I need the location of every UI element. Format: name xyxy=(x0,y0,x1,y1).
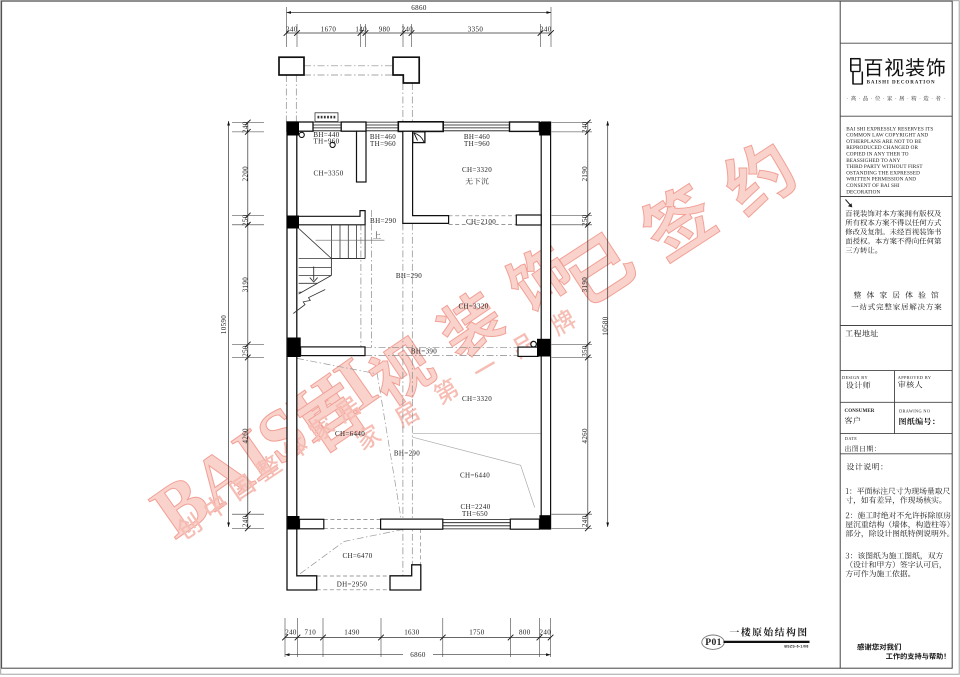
svg-text:CONSUMER: CONSUMER xyxy=(845,409,875,414)
svg-text:350: 350 xyxy=(581,345,589,357)
svg-text:800: 800 xyxy=(519,629,531,637)
svg-text:DECORATION: DECORATION xyxy=(846,189,880,195)
svg-text:DESIGN BY: DESIGN BY xyxy=(842,375,868,380)
svg-text:BSZS-6-1/08: BSZS-6-1/08 xyxy=(784,645,808,649)
svg-text:250: 250 xyxy=(241,214,249,226)
svg-text:250: 250 xyxy=(241,345,249,357)
svg-text:3190: 3190 xyxy=(581,277,589,293)
svg-text:BAI SHI EXPRESSLY RESERVES ITS: BAI SHI EXPRESSLY RESERVES ITS xyxy=(846,126,933,132)
svg-text:CH=6440: CH=6440 xyxy=(460,471,490,479)
svg-text:CH=2100: CH=2100 xyxy=(466,218,496,226)
svg-text:BAISHI DECORATION: BAISHI DECORATION xyxy=(867,80,936,85)
svg-text:240: 240 xyxy=(540,26,552,34)
svg-text:1670: 1670 xyxy=(321,26,337,34)
svg-text:240: 240 xyxy=(286,26,298,34)
svg-text:1490: 1490 xyxy=(344,629,360,637)
svg-text:BH=290: BH=290 xyxy=(394,449,420,457)
svg-text:OTHERPLANS ARE NOT TO BE: OTHERPLANS ARE NOT TO BE xyxy=(846,139,921,145)
svg-text:240: 240 xyxy=(581,121,589,133)
svg-text:240: 240 xyxy=(241,515,249,527)
svg-text:10590: 10590 xyxy=(220,315,228,334)
svg-text:240: 240 xyxy=(540,629,552,637)
svg-text:COMMON LAW COPYRIGHT AND: COMMON LAW COPYRIGHT AND xyxy=(846,133,928,139)
svg-text:OSTANDING THE EXPRESSED: OSTANDING THE EXPRESSED xyxy=(846,170,920,176)
svg-text:CH=6470: CH=6470 xyxy=(342,552,372,560)
svg-text:250: 250 xyxy=(581,214,589,226)
svg-text:BEASSIGHED TO ANY: BEASSIGHED TO ANY xyxy=(846,158,900,164)
svg-text:WRITTEN PERMISSION AND: WRITTEN PERMISSION AND xyxy=(846,177,916,183)
svg-text:THIRD PARTY WITHOUT FIRST: THIRD PARTY WITHOUT FIRST xyxy=(846,164,923,170)
svg-text:TH=960: TH=960 xyxy=(464,140,490,148)
svg-text:DH=2950: DH=2950 xyxy=(337,580,368,588)
svg-text:CH=3320: CH=3320 xyxy=(458,302,488,310)
svg-text:TH=960: TH=960 xyxy=(370,140,396,148)
svg-text:DRAWING NO: DRAWING NO xyxy=(899,409,930,414)
svg-text:APPROVED BY: APPROVED BY xyxy=(898,375,932,380)
svg-text:6860: 6860 xyxy=(411,4,427,12)
svg-text:4260: 4260 xyxy=(581,428,589,444)
svg-text:240: 240 xyxy=(241,121,249,133)
svg-text:CH=6440: CH=6440 xyxy=(335,430,365,438)
svg-text:REPRODUCED CHANGED OR: REPRODUCED CHANGED OR xyxy=(846,145,918,151)
svg-text:CH=3320: CH=3320 xyxy=(462,395,492,403)
svg-text:TH=650: TH=650 xyxy=(462,510,488,518)
svg-text:3190: 3190 xyxy=(241,277,249,293)
svg-text:10580: 10580 xyxy=(601,316,609,335)
svg-text:BH=290: BH=290 xyxy=(396,272,422,280)
svg-text:240: 240 xyxy=(285,629,297,637)
svg-text:1750: 1750 xyxy=(469,629,485,637)
svg-text:CH=3320: CH=3320 xyxy=(462,166,492,174)
svg-text:BH=290: BH=290 xyxy=(370,217,396,225)
svg-text:1630: 1630 xyxy=(404,629,420,637)
svg-text:140: 140 xyxy=(355,26,367,34)
svg-text:BH=390: BH=390 xyxy=(411,348,437,356)
svg-text:2200: 2200 xyxy=(241,166,249,182)
svg-text:TH=960: TH=960 xyxy=(314,138,340,146)
svg-text:240: 240 xyxy=(402,26,414,34)
svg-text:P01: P01 xyxy=(705,637,722,648)
svg-text:980: 980 xyxy=(379,26,391,34)
svg-text:2190: 2190 xyxy=(581,166,589,182)
svg-text:CH=3350: CH=3350 xyxy=(313,170,343,178)
svg-text:CONSENT OF BAI SHI: CONSENT OF BAI SHI xyxy=(846,183,900,189)
svg-text:3350: 3350 xyxy=(468,26,484,34)
svg-text:COPIED IN ANY THER TO: COPIED IN ANY THER TO xyxy=(846,152,909,158)
svg-text:710: 710 xyxy=(305,629,317,637)
svg-text:4260: 4260 xyxy=(241,428,249,444)
svg-text:240: 240 xyxy=(581,515,589,527)
svg-text:DATE: DATE xyxy=(845,436,857,441)
svg-text:6860: 6860 xyxy=(410,651,426,659)
